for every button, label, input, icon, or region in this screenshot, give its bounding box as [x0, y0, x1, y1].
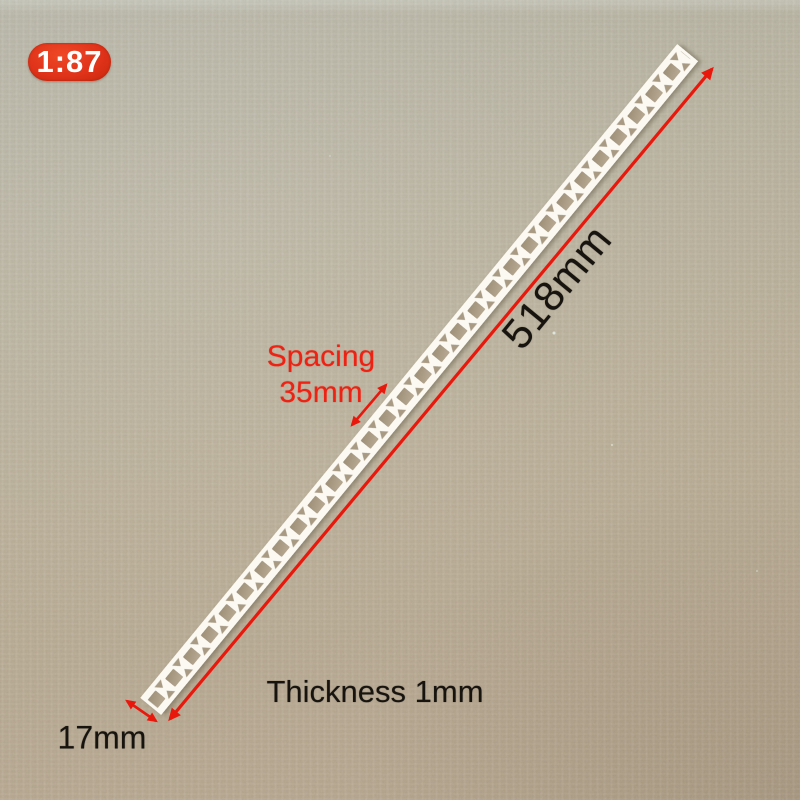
product-photo: 1:87 518mm Spacing 35mm Thickness 1mm 17… — [0, 0, 800, 800]
thickness-dimension-label: Thickness 1mm — [266, 674, 483, 710]
scale-badge: 1:87 — [28, 43, 111, 81]
scale-badge-label: 1:87 — [36, 44, 102, 80]
width-dimension-label: 17mm — [58, 720, 147, 757]
spacing-label-line1: Spacing — [267, 339, 375, 375]
spacing-label-line2: 35mm — [267, 375, 375, 411]
truss-strip-image — [140, 44, 698, 715]
spacing-dimension-label: Spacing 35mm — [267, 339, 375, 411]
length-arrow — [170, 69, 712, 719]
